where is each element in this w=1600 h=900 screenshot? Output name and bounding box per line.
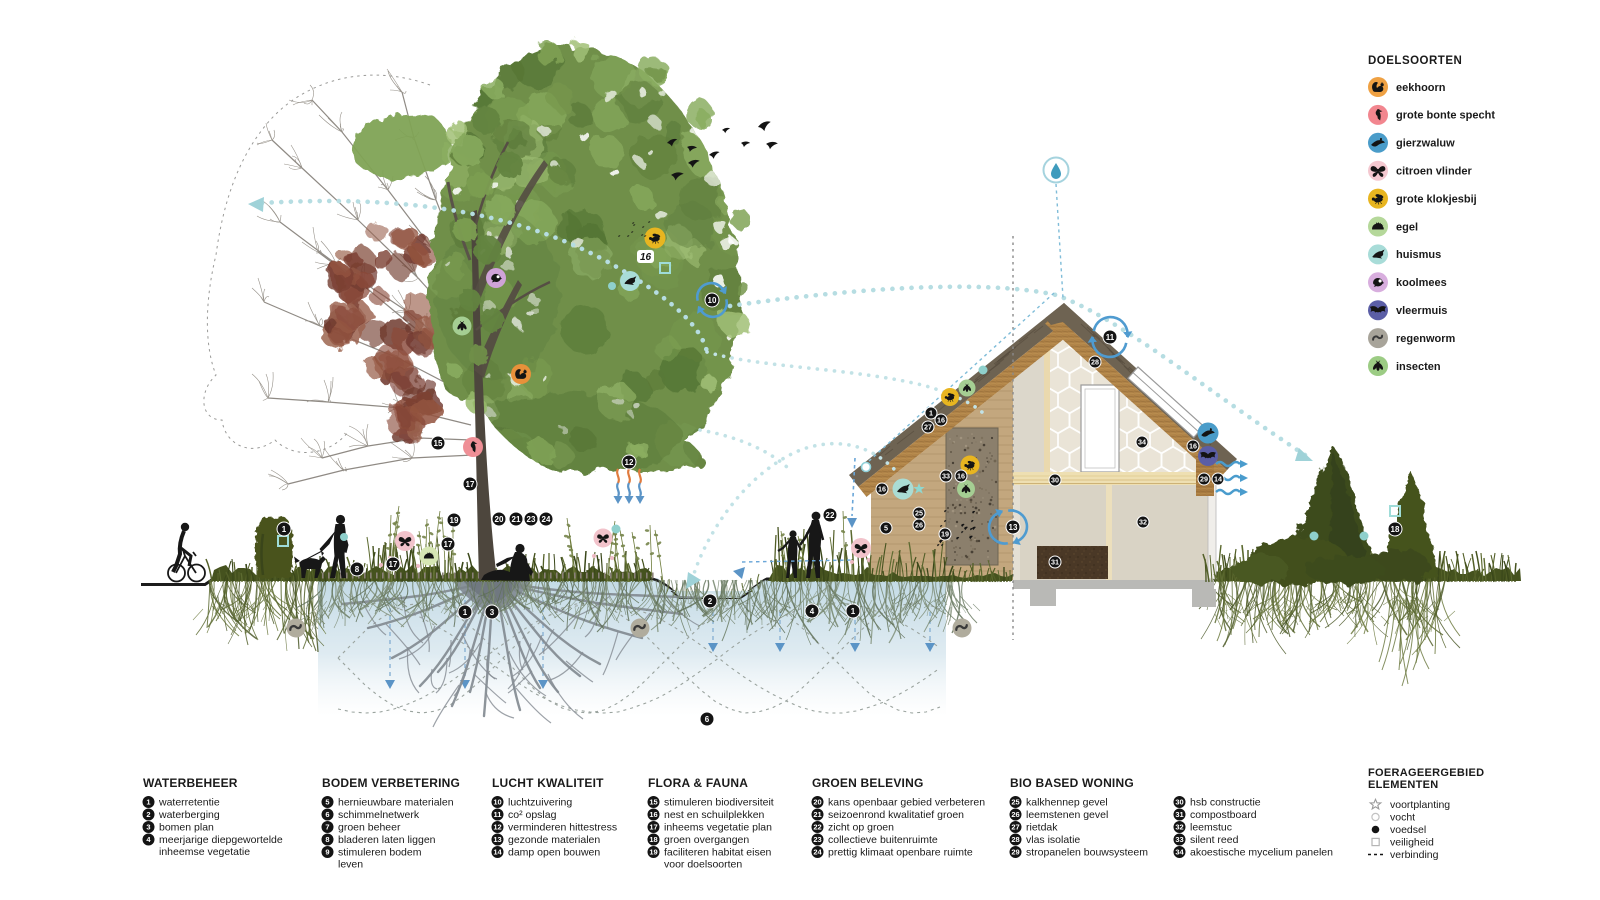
svg-text:5: 5 xyxy=(325,798,329,807)
svg-text:27: 27 xyxy=(924,423,932,432)
svg-text:21: 21 xyxy=(813,810,821,819)
svg-text:10: 10 xyxy=(708,296,717,305)
svg-text:23: 23 xyxy=(527,515,536,524)
svg-text:zicht op groen: zicht op groen xyxy=(828,822,894,834)
svg-text:insecten: insecten xyxy=(1396,361,1441,373)
svg-text:prettig klimaat openbare ruimt: prettig klimaat openbare ruimte xyxy=(828,847,973,859)
svg-text:15: 15 xyxy=(649,798,657,807)
svg-text:BODEM VERBETERING: BODEM VERBETERING xyxy=(322,776,460,790)
svg-text:eekhoorn: eekhoorn xyxy=(1396,82,1446,94)
svg-text:seizoenrond kwalitatief groen: seizoenrond kwalitatief groen xyxy=(828,809,964,821)
svg-text:damp open bouwen: damp open bouwen xyxy=(508,847,600,859)
svg-text:7: 7 xyxy=(325,823,329,832)
svg-text:koolmees: koolmees xyxy=(1396,277,1447,289)
svg-text:hernieuwbare materialen: hernieuwbare materialen xyxy=(338,797,454,809)
svg-text:29: 29 xyxy=(1200,475,1208,484)
svg-text:16: 16 xyxy=(1189,442,1197,451)
svg-text:11: 11 xyxy=(1106,333,1115,342)
svg-text:voortplanting: voortplanting xyxy=(1390,799,1450,811)
svg-text:1: 1 xyxy=(282,525,287,534)
svg-text:grote klokjesbij: grote klokjesbij xyxy=(1396,193,1477,205)
svg-text:16: 16 xyxy=(640,252,652,263)
svg-text:waterberging: waterberging xyxy=(158,809,220,821)
svg-text:gezonde materialen: gezonde materialen xyxy=(508,834,600,846)
svg-text:GROEN BELEVING: GROEN BELEVING xyxy=(812,776,923,790)
svg-text:regenworm: regenworm xyxy=(1396,333,1456,345)
svg-text:compostboard: compostboard xyxy=(1190,809,1257,821)
svg-text:egel: egel xyxy=(1396,221,1418,233)
svg-text:13: 13 xyxy=(1009,523,1018,532)
svg-text:stimuleren biodiversiteit: stimuleren biodiversiteit xyxy=(664,797,774,809)
svg-text:3: 3 xyxy=(490,608,495,617)
svg-text:17: 17 xyxy=(649,823,657,832)
svg-text:bladeren laten liggen: bladeren laten liggen xyxy=(338,834,436,846)
svg-text:bomen plan: bomen plan xyxy=(159,822,214,834)
svg-text:schimmelnetwerk: schimmelnetwerk xyxy=(338,809,420,821)
svg-text:21: 21 xyxy=(512,515,521,524)
svg-text:1: 1 xyxy=(851,607,856,616)
svg-text:faciliteren habitat eisen: faciliteren habitat eisen xyxy=(664,847,772,859)
svg-text:verbinding: verbinding xyxy=(1390,849,1439,861)
svg-text:17: 17 xyxy=(389,560,398,569)
svg-text:akoestische mycelium panelen: akoestische mycelium panelen xyxy=(1190,847,1333,859)
svg-text:WATERBEHEER: WATERBEHEER xyxy=(143,776,238,790)
svg-text:stropanelen bouwsysteem: stropanelen bouwsysteem xyxy=(1026,847,1148,859)
svg-text:28: 28 xyxy=(1011,835,1019,844)
svg-text:hsb constructie: hsb constructie xyxy=(1190,797,1261,809)
svg-text:luchtzuivering: luchtzuivering xyxy=(508,797,572,809)
svg-text:inheemse vegetatie: inheemse vegetatie xyxy=(159,846,250,858)
svg-text:31: 31 xyxy=(1051,558,1059,567)
svg-text:18: 18 xyxy=(1391,525,1400,534)
svg-text:8: 8 xyxy=(325,835,329,844)
svg-text:leemstenen gevel: leemstenen gevel xyxy=(1026,809,1108,821)
svg-text:28: 28 xyxy=(1091,358,1099,367)
svg-text:18: 18 xyxy=(649,835,657,844)
svg-text:huismus: huismus xyxy=(1396,249,1441,261)
svg-text:leemstuc: leemstuc xyxy=(1190,822,1232,834)
svg-text:14: 14 xyxy=(493,848,502,857)
svg-text:DOELSOORTEN: DOELSOORTEN xyxy=(1368,55,1462,67)
svg-text:silent reed: silent reed xyxy=(1190,834,1239,846)
svg-text:8: 8 xyxy=(355,565,360,574)
svg-text:grote bonte specht: grote bonte specht xyxy=(1396,110,1495,122)
svg-text:co² opslag: co² opslag xyxy=(508,809,557,821)
svg-text:20: 20 xyxy=(813,798,821,807)
svg-text:33: 33 xyxy=(942,472,950,481)
svg-text:30: 30 xyxy=(1175,798,1183,807)
svg-text:veiligheid: veiligheid xyxy=(1390,837,1434,849)
svg-text:32: 32 xyxy=(1175,823,1183,832)
svg-text:ELEMENTEN: ELEMENTEN xyxy=(1368,779,1439,791)
svg-text:12: 12 xyxy=(625,458,634,467)
svg-text:26: 26 xyxy=(915,521,923,530)
svg-text:34: 34 xyxy=(1175,848,1184,857)
svg-text:FOERAGEERGEBIED: FOERAGEERGEBIED xyxy=(1368,767,1484,779)
svg-text:verminderen hittestress: verminderen hittestress xyxy=(508,822,617,834)
svg-text:leven: leven xyxy=(338,859,363,871)
svg-text:6: 6 xyxy=(705,715,710,724)
svg-text:1: 1 xyxy=(463,608,468,617)
svg-text:kalkhennep gevel: kalkhennep gevel xyxy=(1026,797,1108,809)
svg-text:gierzwaluw: gierzwaluw xyxy=(1396,138,1455,150)
svg-text:6: 6 xyxy=(325,810,329,819)
svg-text:vocht: vocht xyxy=(1390,812,1415,824)
svg-text:24: 24 xyxy=(813,848,822,857)
svg-text:32: 32 xyxy=(1139,518,1147,527)
svg-text:voedsel: voedsel xyxy=(1390,824,1426,836)
svg-text:10: 10 xyxy=(493,798,501,807)
svg-text:29: 29 xyxy=(1011,848,1019,857)
svg-text:13: 13 xyxy=(493,835,501,844)
svg-text:16: 16 xyxy=(957,472,965,481)
svg-text:groen beheer: groen beheer xyxy=(338,822,401,834)
svg-text:22: 22 xyxy=(813,823,821,832)
svg-text:2: 2 xyxy=(708,597,713,606)
svg-text:FLORA & FAUNA: FLORA & FAUNA xyxy=(648,776,748,790)
svg-text:25: 25 xyxy=(915,509,923,518)
svg-text:1: 1 xyxy=(929,409,933,418)
svg-text:stimuleren bodem: stimuleren bodem xyxy=(338,847,422,859)
svg-text:kans openbaar gebied verbetere: kans openbaar gebied verbeteren xyxy=(828,797,985,809)
svg-text:waterretentie: waterretentie xyxy=(158,797,220,809)
svg-text:1: 1 xyxy=(146,798,150,807)
svg-text:19: 19 xyxy=(649,848,657,857)
svg-text:9: 9 xyxy=(325,848,329,857)
svg-text:2: 2 xyxy=(146,810,150,819)
svg-text:citroen vlinder: citroen vlinder xyxy=(1396,166,1473,178)
svg-text:groen overgangen: groen overgangen xyxy=(664,834,749,846)
svg-text:19: 19 xyxy=(450,516,459,525)
svg-text:23: 23 xyxy=(813,835,821,844)
svg-text:vleermuis: vleermuis xyxy=(1396,305,1447,317)
svg-text:meerjarige diepgewortelde: meerjarige diepgewortelde xyxy=(159,834,283,846)
svg-text:12: 12 xyxy=(493,823,501,832)
svg-text:voor doelsoorten: voor doelsoorten xyxy=(664,859,742,871)
svg-text:inheems vegetatie plan: inheems vegetatie plan xyxy=(664,822,772,834)
svg-text:31: 31 xyxy=(1175,810,1183,819)
svg-text:3: 3 xyxy=(146,823,150,832)
svg-text:33: 33 xyxy=(1175,835,1183,844)
svg-text:BIO BASED WONING: BIO BASED WONING xyxy=(1010,776,1134,790)
svg-text:11: 11 xyxy=(494,810,502,819)
svg-text:25: 25 xyxy=(1011,798,1019,807)
svg-text:17: 17 xyxy=(466,480,475,489)
svg-text:vlas isolatie: vlas isolatie xyxy=(1026,834,1080,846)
svg-text:34: 34 xyxy=(1138,438,1146,447)
svg-text:rietdak: rietdak xyxy=(1026,822,1058,834)
svg-text:26: 26 xyxy=(1011,810,1019,819)
svg-text:4: 4 xyxy=(810,607,815,616)
svg-text:20: 20 xyxy=(495,515,504,524)
svg-text:14: 14 xyxy=(1214,475,1222,484)
svg-text:nest en schuilplekken: nest en schuilplekken xyxy=(664,809,765,821)
svg-text:16: 16 xyxy=(937,416,945,425)
svg-text:22: 22 xyxy=(826,511,835,520)
svg-text:30: 30 xyxy=(1051,476,1059,485)
svg-text:27: 27 xyxy=(1011,823,1019,832)
svg-text:16: 16 xyxy=(649,810,657,819)
svg-text:5: 5 xyxy=(884,524,888,533)
svg-text:16: 16 xyxy=(878,485,886,494)
svg-text:17: 17 xyxy=(444,540,453,549)
svg-text:collectieve buitenruimte: collectieve buitenruimte xyxy=(828,834,938,846)
svg-text:19: 19 xyxy=(941,530,949,539)
svg-text:LUCHT KWALITEIT: LUCHT KWALITEIT xyxy=(492,776,604,790)
svg-text:15: 15 xyxy=(434,439,443,448)
svg-text:24: 24 xyxy=(542,515,551,524)
